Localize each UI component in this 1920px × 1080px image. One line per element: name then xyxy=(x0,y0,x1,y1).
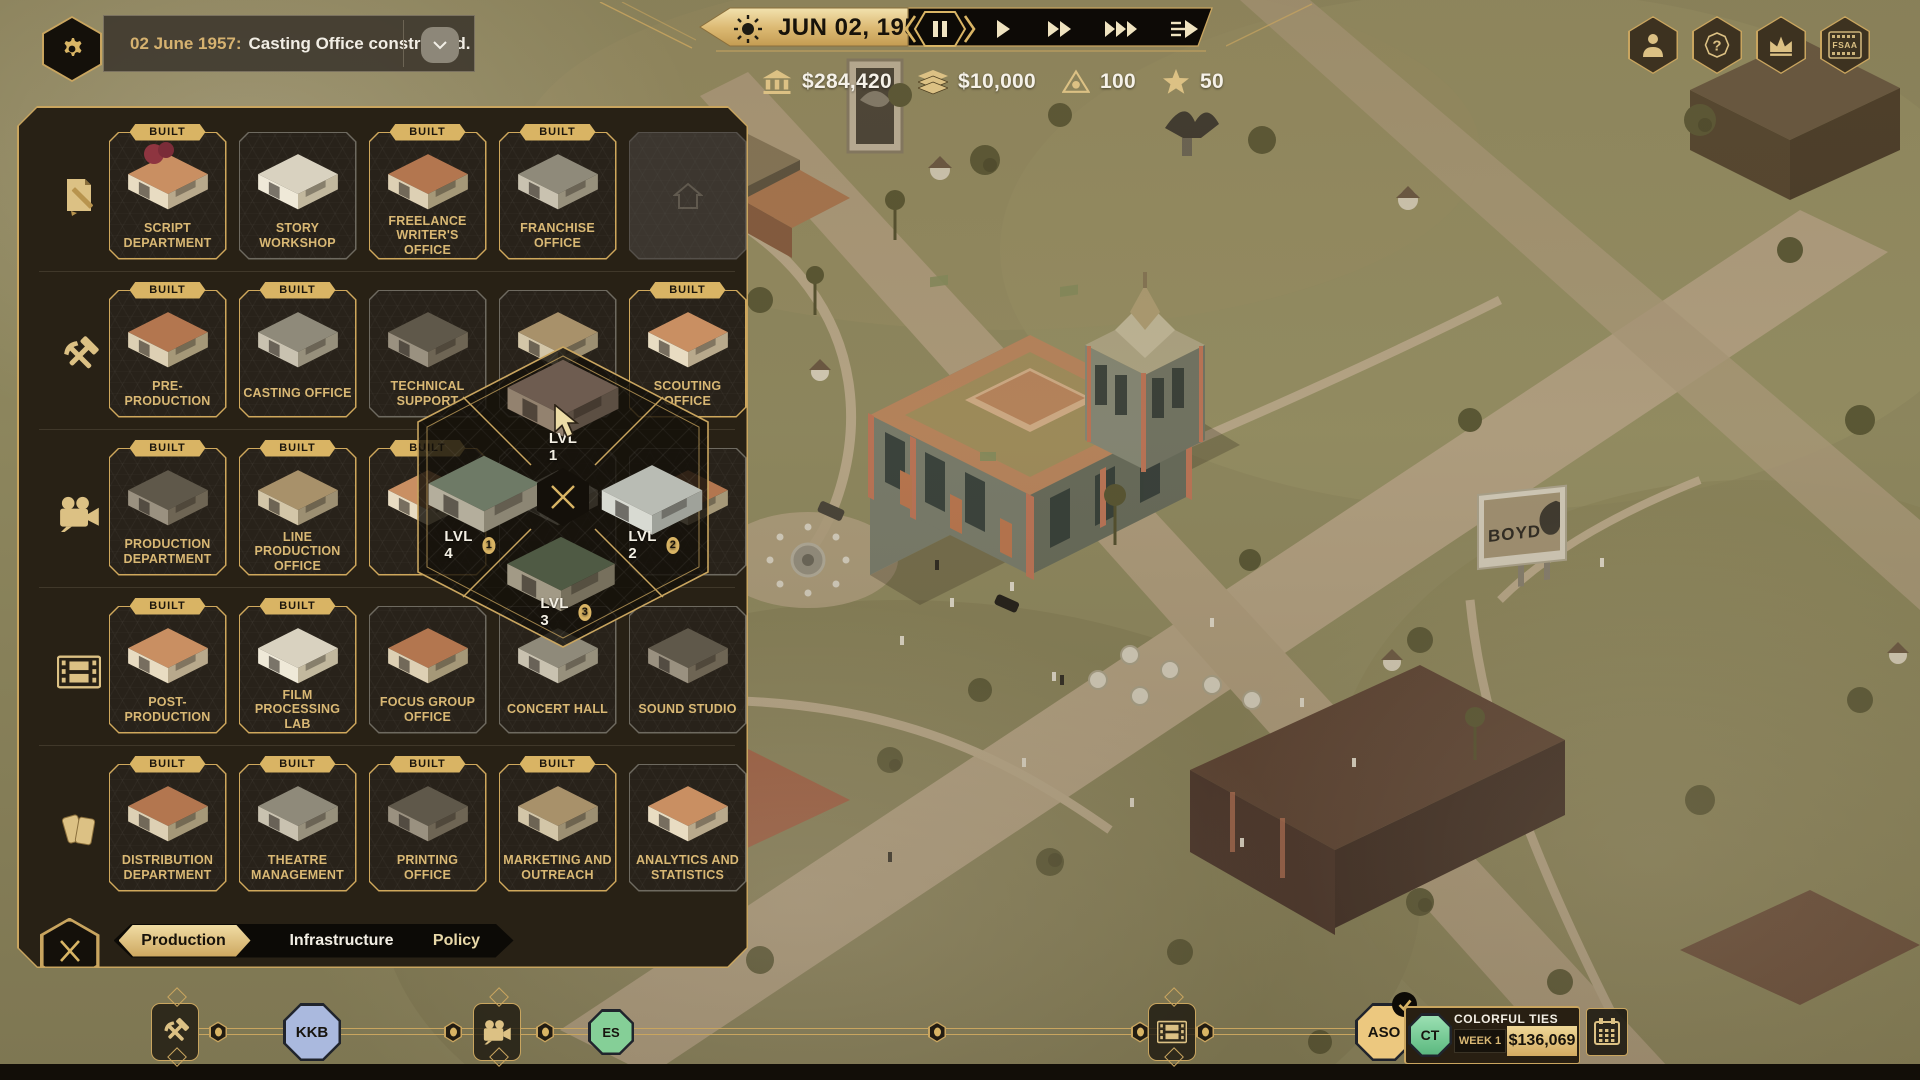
building-name: PRODUCTION DEPARTMENT xyxy=(113,535,223,569)
building-name: PRINTING OFFICE xyxy=(373,851,483,885)
calendar-icon xyxy=(1594,1018,1620,1046)
built-badge: BUILT xyxy=(390,124,466,141)
building-thumbnail xyxy=(122,780,214,844)
question-icon: ? xyxy=(1694,18,1741,73)
building-name: POST-PRODUCTION xyxy=(113,693,223,727)
building-name: FILM PROCESSING LAB xyxy=(243,693,353,727)
speed-skip-button[interactable] xyxy=(1169,17,1199,41)
speed-pause-button[interactable] xyxy=(903,9,977,49)
building-card-pre-production[interactable]: PRE-PRODUCTIONBUILT xyxy=(109,290,227,418)
upgrade-option-building-lvl-2[interactable] xyxy=(594,457,710,538)
building-card-sound-studio[interactable]: SOUND STUDIO xyxy=(629,606,747,734)
project-initials-badge[interactable]: CT xyxy=(1408,1013,1452,1057)
bottom-shade xyxy=(0,1064,1920,1080)
building-name: CONCERT HALL xyxy=(503,693,613,727)
built-badge: BUILT xyxy=(260,282,336,299)
node-dot xyxy=(1137,1028,1144,1037)
pipeline-node xyxy=(209,1022,227,1043)
upgrade-cost-badge: 3 xyxy=(578,604,591,621)
node-dot xyxy=(215,1028,222,1037)
tab-policy[interactable]: Policy xyxy=(414,924,500,958)
built-badge: BUILT xyxy=(130,282,206,299)
building-thumbnail xyxy=(382,306,474,370)
building-name: CASTING OFFICE xyxy=(243,377,353,411)
star-icon xyxy=(1162,69,1190,95)
film-award-menu-button[interactable]: FSAA xyxy=(1820,16,1870,74)
speed-fast-forward-button[interactable] xyxy=(1046,18,1074,40)
pipeline-node xyxy=(536,1022,554,1043)
upgrade-option-label: LVL 2 xyxy=(628,528,660,562)
project-budget: $136,069 xyxy=(1507,1026,1577,1056)
building-card-production-department[interactable]: PRODUCTION DEPARTMENTBUILT xyxy=(109,448,227,576)
building-name: LINE PRODUCTION OFFICE xyxy=(243,535,353,569)
person-menu-button[interactable] xyxy=(1628,16,1678,74)
filmstrip-icon xyxy=(51,644,107,700)
project-panel[interactable]: CT COLORFUL TIES WEEK 1 $136,069 xyxy=(1404,1006,1580,1064)
building-card[interactable] xyxy=(629,132,747,260)
notification-banner[interactable]: 02 June 1957: Casting Office constructed… xyxy=(103,15,475,72)
node-dot xyxy=(450,1028,457,1037)
upgrade-option-lvl-2[interactable]: LVL 22 xyxy=(628,528,679,562)
corner-menu: ?FSAA xyxy=(1628,16,1870,74)
built-badge: BUILT xyxy=(130,440,206,457)
building-card-scouting-office[interactable]: SCOUTING OFFICEBUILT xyxy=(629,290,747,418)
built-badge: BUILT xyxy=(260,440,336,457)
building-thumbnail xyxy=(642,306,734,370)
built-badge: BUILT xyxy=(130,124,206,141)
building-name: MARKETING AND OUTREACH xyxy=(503,851,613,885)
row-divider xyxy=(39,271,735,272)
building-card-analytics-and-statistics[interactable]: ANALYTICS AND STATISTICS xyxy=(629,764,747,892)
upgrade-option-lvl-4[interactable]: LVL 41 xyxy=(444,528,495,562)
resource-value: 50 xyxy=(1200,70,1224,94)
building-thumbnail xyxy=(642,780,734,844)
tab-infrastructure[interactable]: Infrastructure xyxy=(242,924,442,958)
building-thumbnail xyxy=(122,306,214,370)
row-divider xyxy=(39,587,735,588)
building-thumbnail xyxy=(252,306,344,370)
crown-menu-button[interactable] xyxy=(1756,16,1806,74)
building-thumbnail xyxy=(382,622,474,686)
speed-play-button[interactable] xyxy=(994,18,1012,40)
badge-label: FSAA xyxy=(1832,40,1857,50)
resource-cash-stack: $10,000 xyxy=(918,69,1036,95)
tools-icon xyxy=(51,328,107,384)
building-name: FRANCHISE OFFICE xyxy=(503,219,613,253)
building-thumbnail xyxy=(252,622,344,686)
settings-button[interactable] xyxy=(42,16,102,82)
built-badge: BUILT xyxy=(130,598,206,615)
game-screen: BOYD xyxy=(0,0,1920,1080)
filmstrip-icon xyxy=(1157,1015,1187,1049)
resource-bank: $284,420 xyxy=(762,69,892,95)
speed-fastest-forward-button[interactable] xyxy=(1103,18,1141,40)
chevron-down-icon xyxy=(432,40,448,50)
influence-eye-icon xyxy=(1062,69,1090,95)
banner-ornament-right xyxy=(1226,2,1316,50)
pipeline-node xyxy=(444,1022,462,1043)
building-name: PRE-PRODUCTION xyxy=(113,377,223,411)
svg-text:?: ? xyxy=(1712,38,1721,55)
calendar-button[interactable] xyxy=(1586,1008,1628,1056)
bank-icon xyxy=(762,69,792,95)
built-badge: BUILT xyxy=(260,756,336,773)
crown-icon xyxy=(1758,18,1805,73)
resource-influence-eye: 100 xyxy=(1062,69,1136,95)
camera-icon xyxy=(51,486,107,542)
pipeline-stage-tools[interactable] xyxy=(151,1003,199,1061)
building-name: SCOUTING OFFICE xyxy=(633,377,743,411)
node-dot xyxy=(542,1028,549,1037)
resource-value: 100 xyxy=(1100,70,1136,94)
banner-ornament-left xyxy=(596,2,696,50)
building-card-script-department[interactable]: SCRIPT DEPARTMENTBUILT xyxy=(109,132,227,260)
resources-bar: $284,420$10,00010050 xyxy=(762,66,1224,98)
row-divider xyxy=(39,429,735,430)
building-thumbnail xyxy=(122,464,214,528)
empty-slot-icon xyxy=(673,182,703,210)
film-award-icon: FSAA xyxy=(1822,18,1869,73)
building-thumbnail xyxy=(122,148,214,212)
building-name: FOCUS GROUP OFFICE xyxy=(373,693,483,727)
building-name: STORY WORKSHOP xyxy=(243,219,353,253)
building-card-distribution-department[interactable]: DISTRIBUTION DEPARTMENTBUILT xyxy=(109,764,227,892)
node-dot xyxy=(934,1028,941,1037)
upgrade-cost-badge: 2 xyxy=(666,537,679,554)
notification-expand-button[interactable] xyxy=(421,27,459,63)
upgrade-option-building-lvl-4[interactable] xyxy=(420,447,548,537)
building-name: THEATRE MANAGEMENT xyxy=(243,851,353,885)
pipeline-stage-filmstrip[interactable] xyxy=(1148,1003,1196,1061)
built-badge: BUILT xyxy=(130,756,206,773)
date-banner: JUN 02, 1957 xyxy=(690,4,1230,54)
building-card-post-production[interactable]: POST-PRODUCTIONBUILT xyxy=(109,606,227,734)
pipeline-node xyxy=(1131,1022,1149,1043)
built-badge: BUILT xyxy=(520,124,596,141)
pipeline-node xyxy=(1196,1022,1214,1043)
cash-stack-icon xyxy=(918,69,948,95)
building-card-focus-group-office[interactable]: FOCUS GROUP OFFICE xyxy=(369,606,487,734)
row-divider xyxy=(39,745,735,746)
building-name: TECHNICAL SUPPORT xyxy=(373,377,483,411)
divider xyxy=(403,20,404,67)
tab-production[interactable]: Production xyxy=(128,924,240,958)
building-card-theatre-management[interactable]: THEATRE MANAGEMENTBUILT xyxy=(239,764,357,892)
building-card-story-workshop[interactable]: STORY WORKSHOP xyxy=(239,132,357,260)
resource-value: $10,000 xyxy=(958,70,1036,94)
resource-star: 50 xyxy=(1162,69,1224,95)
built-badge: BUILT xyxy=(520,756,596,773)
pipeline-stage-camera[interactable] xyxy=(473,1003,521,1061)
building-card-franchise-office[interactable]: FRANCHISE OFFICEBUILT xyxy=(499,132,617,260)
building-card-marketing-and-outreach[interactable]: MARKETING AND OUTREACHBUILT xyxy=(499,764,617,892)
building-card-casting-office[interactable]: CASTING OFFICEBUILT xyxy=(239,290,357,418)
built-badge: BUILT xyxy=(260,598,336,615)
building-thumbnail xyxy=(512,148,604,212)
script-icon xyxy=(51,170,107,226)
building-thumbnail xyxy=(382,148,474,212)
building-thumbnail xyxy=(382,780,474,844)
built-badge: BUILT xyxy=(390,756,466,773)
building-card-technical-support[interactable]: TECHNICAL SUPPORT xyxy=(369,290,487,418)
node-dot xyxy=(1202,1028,1209,1037)
tools-icon xyxy=(160,1012,190,1052)
project-name: COLORFUL TIES xyxy=(1454,1012,1558,1026)
building-thumbnail xyxy=(252,464,344,528)
building-thumbnail xyxy=(122,622,214,686)
panel-tabs: ProductionInfrastructurePolicy xyxy=(114,924,514,958)
mouse-cursor xyxy=(552,404,584,440)
pipeline-node xyxy=(928,1022,946,1043)
upgrade-option-label: LVL 3 xyxy=(540,595,572,629)
building-name: ANALYTICS AND STATISTICS xyxy=(633,851,743,885)
building-thumbnail xyxy=(252,148,344,212)
building-card-line-production-office[interactable]: LINE PRODUCTION OFFICEBUILT xyxy=(239,448,357,576)
building-name: DISTRIBUTION DEPARTMENT xyxy=(113,851,223,885)
building-name: FREELANCE WRITER'S OFFICE xyxy=(373,219,483,253)
building-name: SOUND STUDIO xyxy=(633,693,743,727)
building-card-printing-office[interactable]: PRINTING OFFICEBUILT xyxy=(369,764,487,892)
project-week: WEEK 1 xyxy=(1454,1029,1506,1053)
building-thumbnail xyxy=(512,622,604,686)
pipeline-badge-es[interactable]: ES xyxy=(588,1009,634,1055)
resource-value: $284,420 xyxy=(802,70,892,94)
person-icon xyxy=(1630,18,1677,73)
speed-controls xyxy=(690,4,1230,54)
built-badge: BUILT xyxy=(650,282,726,299)
notification-date: 02 June 1957: xyxy=(130,34,242,54)
upgrade-option-lvl-3[interactable]: LVL 33 xyxy=(540,595,591,629)
close-icon xyxy=(537,468,589,526)
pipeline-badge-kkb[interactable]: KKB xyxy=(283,1003,341,1061)
badge-label: ES xyxy=(591,1012,632,1053)
building-name: SCRIPT DEPARTMENT xyxy=(113,219,223,253)
building-card-film-processing-lab[interactable]: FILM PROCESSING LABBUILT xyxy=(239,606,357,734)
question-menu-button[interactable]: ? xyxy=(1692,16,1742,74)
tickets-icon xyxy=(51,802,107,858)
building-card-freelance-writer-s-office[interactable]: FREELANCE WRITER'S OFFICEBUILT xyxy=(369,132,487,260)
camera-icon xyxy=(482,1014,512,1050)
building-thumbnail xyxy=(252,780,344,844)
upgrade-option-label: LVL 4 xyxy=(444,528,476,562)
building-thumbnail xyxy=(512,780,604,844)
upgrade-close-button[interactable] xyxy=(535,466,591,528)
upgrade-cost-badge: 1 xyxy=(482,537,495,554)
building-thumbnail xyxy=(642,622,734,686)
